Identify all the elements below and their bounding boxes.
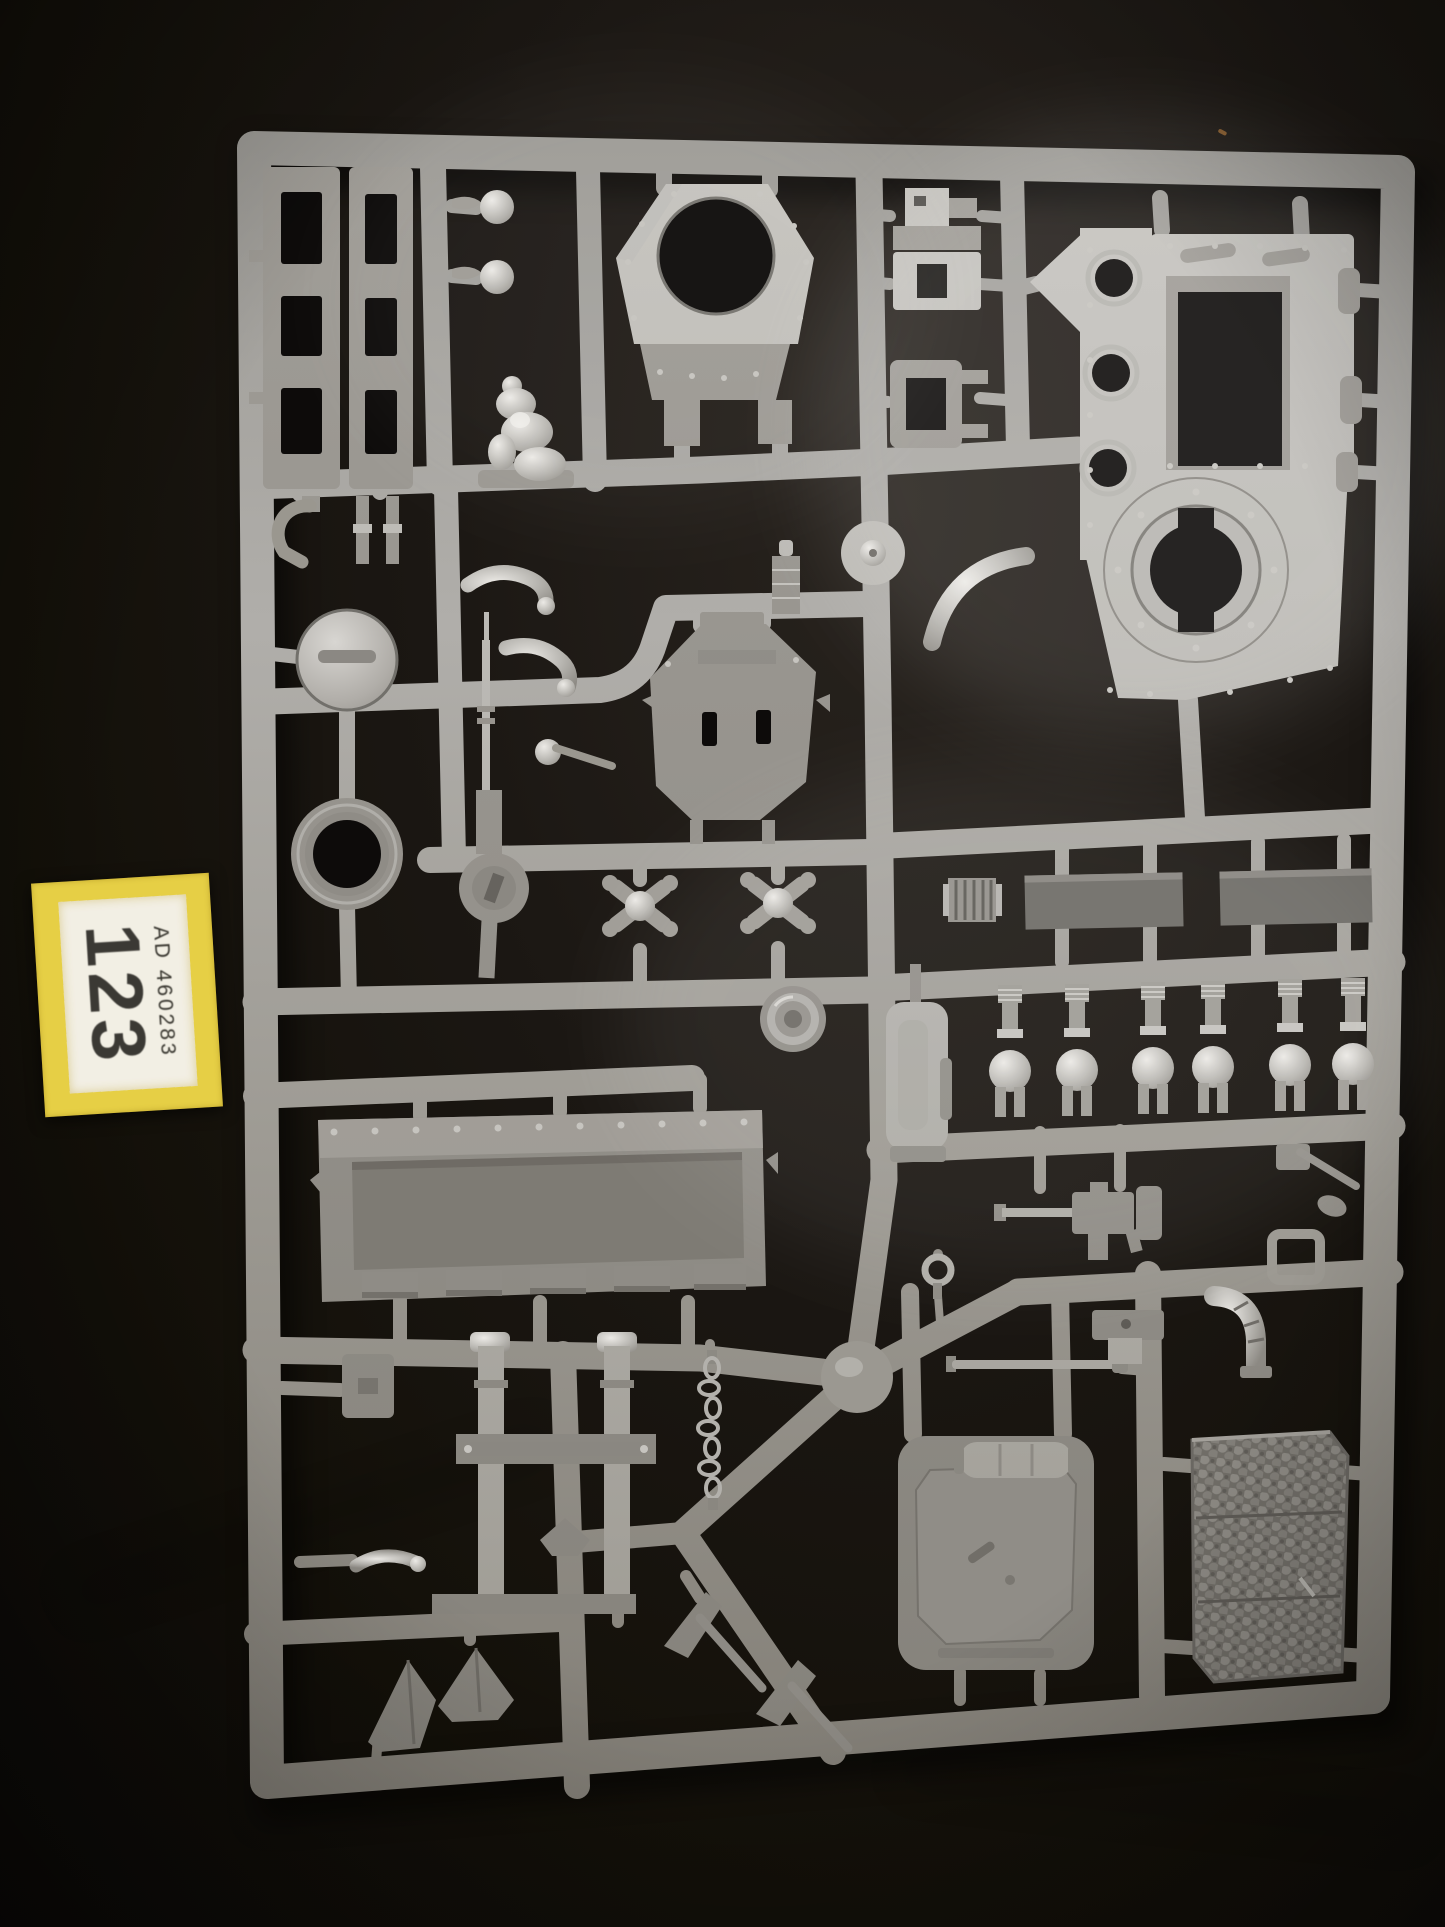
sticker-number: 123 xyxy=(76,922,154,1068)
lighting-overlays xyxy=(0,0,1445,1927)
sticker-rotated-text: AD 460283 123 xyxy=(60,896,195,1091)
sprue-photo xyxy=(0,0,1445,1927)
inventory-sticker: AD 460283 123 xyxy=(31,873,223,1117)
sticker-paper: AD 460283 123 xyxy=(58,894,197,1093)
